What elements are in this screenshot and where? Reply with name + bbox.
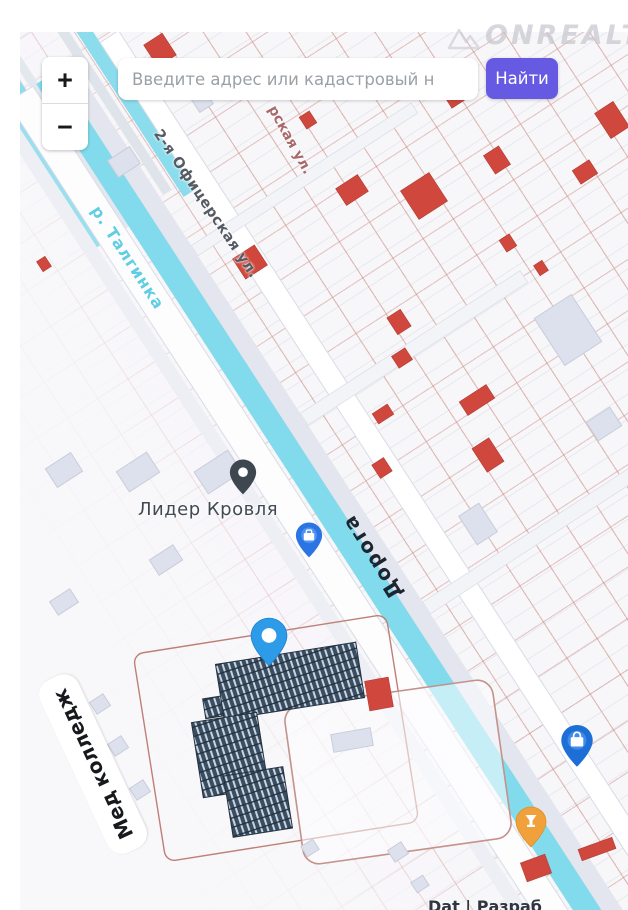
lider-krovlya-pin[interactable] [229, 457, 257, 501]
bag-pin-icon [560, 724, 594, 768]
goblet-pin-icon [515, 806, 547, 848]
search-button[interactable]: Найти [486, 58, 558, 99]
right-business-pin[interactable] [560, 724, 594, 772]
address-search-input[interactable] [118, 58, 478, 100]
selected-pin-icon [249, 617, 289, 667]
zoom-out-button[interactable]: − [42, 104, 88, 150]
map-vector-layer [0, 0, 628, 910]
bar-pin[interactable] [515, 806, 547, 852]
selected-location-pin[interactable] [249, 617, 289, 671]
map-app-screen: р. Талгинка 2-я Офицерская ул. рская ул.… [0, 0, 628, 910]
road-business-pin[interactable] [295, 521, 323, 563]
page-left-margin [0, 0, 20, 910]
page-top-margin [0, 0, 628, 32]
map-zoom-control: + − [42, 57, 88, 150]
place-pin-icon [229, 457, 257, 497]
briefcase-pin-icon [295, 521, 323, 559]
zoom-in-button[interactable]: + [42, 57, 88, 103]
